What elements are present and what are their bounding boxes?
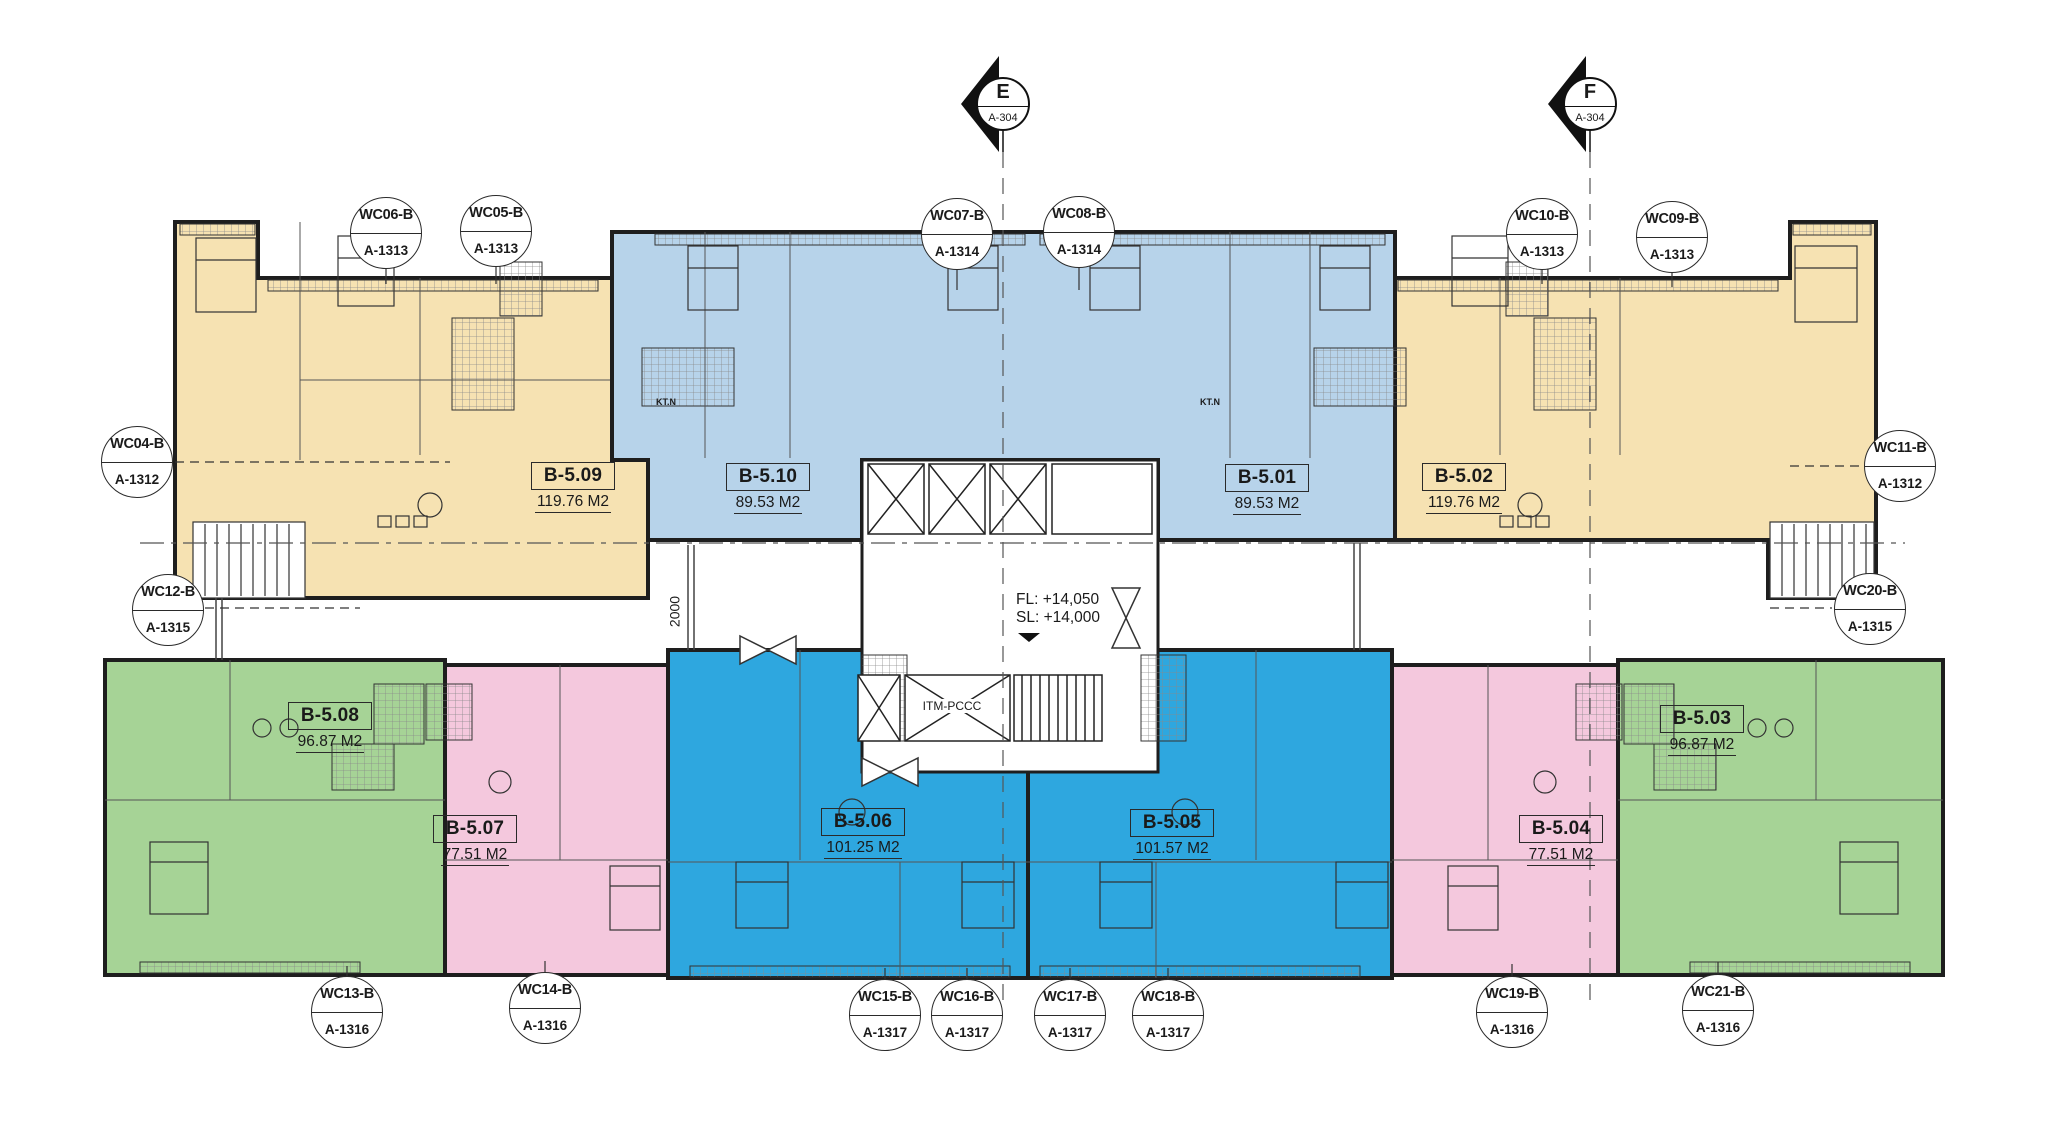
unit-label-b-5-07: B-5.07 77.51 M2	[405, 815, 545, 866]
callout-sheet: A-1316	[312, 1013, 382, 1048]
callout-code: WC13-B	[312, 977, 382, 1013]
callout-sheet: A-1313	[351, 234, 421, 269]
grid-marker-letter: E	[978, 79, 1028, 107]
callout-sheet: A-1315	[133, 611, 203, 646]
callout-code: WC06-B	[351, 198, 421, 234]
unit-code: B-5.06	[821, 808, 905, 836]
callout-code: WC19-B	[1477, 977, 1547, 1013]
callout-wc12-b: WC12-B A-1315	[132, 574, 204, 646]
callout-code: WC11-B	[1865, 431, 1935, 467]
callout-sheet: A-1317	[1133, 1016, 1203, 1051]
callout-wc20-b: WC20-B A-1315	[1834, 573, 1906, 645]
unit-code: B-5.07	[433, 815, 517, 843]
callout-wc14-b: WC14-B A-1316	[509, 972, 581, 1044]
unit-area: 77.51 M2	[1527, 846, 1596, 866]
callout-wc19-b: WC19-B A-1316	[1476, 976, 1548, 1048]
callout-code: WC10-B	[1507, 199, 1577, 235]
callout-wc07-b: WC07-B A-1314	[921, 198, 993, 270]
callout-wc16-b: WC16-B A-1317	[931, 979, 1003, 1051]
callout-wc10-b: WC10-B A-1313	[1506, 198, 1578, 270]
callout-code: WC14-B	[510, 973, 580, 1009]
callout-code: WC18-B	[1133, 980, 1203, 1016]
callout-sheet: A-1314	[922, 235, 992, 270]
unit-label-b-5-01: B-5.01 89.53 M2	[1197, 464, 1337, 515]
unit-label-b-5-10: B-5.10 89.53 M2	[698, 463, 838, 514]
itm-pccc-label: ITM-PCCC	[897, 699, 1007, 713]
floor-level-note: FL: +14,050 SL: +14,000	[1016, 591, 1100, 627]
unit-code: B-5.02	[1422, 463, 1506, 491]
unit-label-b-5-04: B-5.04 77.51 M2	[1491, 815, 1631, 866]
grid-marker-sheet: A-304	[978, 107, 1028, 129]
unit-code: B-5.05	[1130, 809, 1214, 837]
callout-code: WC16-B	[932, 980, 1002, 1016]
callout-wc18-b: WC18-B A-1317	[1132, 979, 1204, 1051]
unit-code: B-5.03	[1660, 705, 1744, 733]
tech-room-label-right: KT.N	[1192, 397, 1228, 407]
unit-code: B-5.04	[1519, 815, 1603, 843]
unit-area: 119.76 M2	[1426, 494, 1502, 514]
unit-area: 101.57 M2	[1133, 840, 1210, 860]
callout-sheet: A-1313	[461, 232, 531, 267]
callout-sheet: A-1312	[102, 463, 172, 498]
floor-level-sl: SL: +14,000	[1016, 609, 1100, 627]
callout-wc21-b: WC21-B A-1316	[1682, 974, 1754, 1046]
unit-code: B-5.01	[1225, 464, 1309, 492]
callout-wc04-b: WC04-B A-1312	[101, 426, 173, 498]
tech-room-label-left: KT.N	[648, 397, 684, 407]
callout-sheet: A-1312	[1865, 467, 1935, 502]
unit-area: 96.87 M2	[296, 733, 365, 753]
callout-code: WC21-B	[1683, 975, 1753, 1011]
callout-code: WC12-B	[133, 575, 203, 611]
callout-code: WC17-B	[1035, 980, 1105, 1016]
floor-plan-drawing	[0, 0, 2048, 1130]
callout-sheet: A-1316	[1683, 1011, 1753, 1046]
callout-sheet: A-1313	[1507, 235, 1577, 270]
grid-marker-f: F A-304	[1563, 77, 1617, 131]
unit-area: 89.53 M2	[734, 494, 803, 514]
floor-level-fl: FL: +14,050	[1016, 591, 1100, 609]
unit-code: B-5.08	[288, 702, 372, 730]
unit-code: B-5.09	[531, 462, 615, 490]
callout-sheet: A-1313	[1637, 238, 1707, 273]
grid-marker-e: E A-304	[976, 77, 1030, 131]
callout-wc09-b: WC09-B A-1313	[1636, 201, 1708, 273]
callout-sheet: A-1317	[1035, 1016, 1105, 1051]
dimension-2000: 2000	[667, 586, 682, 638]
grid-marker-sheet: A-304	[1565, 107, 1615, 129]
unit-area: 96.87 M2	[1668, 736, 1737, 756]
callout-code: WC04-B	[102, 427, 172, 463]
unit-label-b-5-02: B-5.02 119.76 M2	[1394, 463, 1534, 514]
unit-area: 77.51 M2	[441, 846, 510, 866]
callout-sheet: A-1316	[510, 1009, 580, 1044]
callout-sheet: A-1314	[1044, 233, 1114, 268]
callout-wc15-b: WC15-B A-1317	[849, 979, 921, 1051]
callout-wc06-b: WC06-B A-1313	[350, 197, 422, 269]
callout-code: WC05-B	[461, 196, 531, 232]
callout-wc11-b: WC11-B A-1312	[1864, 430, 1936, 502]
unit-label-b-5-08: B-5.08 96.87 M2	[260, 702, 400, 753]
unit-label-b-5-05: B-5.05 101.57 M2	[1102, 809, 1242, 860]
floor-plan: E A-304 F A-304 WC06-B A-1313 WC05-B A-1…	[0, 0, 2048, 1130]
callout-wc05-b: WC05-B A-1313	[460, 195, 532, 267]
callout-code: WC07-B	[922, 199, 992, 235]
callout-code: WC09-B	[1637, 202, 1707, 238]
callout-code: WC15-B	[850, 980, 920, 1016]
callout-sheet: A-1317	[850, 1016, 920, 1051]
grid-marker-letter: F	[1565, 79, 1615, 107]
callout-sheet: A-1315	[1835, 610, 1905, 645]
grid-marker-stems	[1003, 131, 1590, 152]
unit-label-b-5-09: B-5.09 119.76 M2	[503, 462, 643, 513]
callout-wc13-b: WC13-B A-1316	[311, 976, 383, 1048]
callout-sheet: A-1317	[932, 1016, 1002, 1051]
unit-label-b-5-03: B-5.03 96.87 M2	[1632, 705, 1772, 756]
callout-wc08-b: WC08-B A-1314	[1043, 196, 1115, 268]
callout-code: WC08-B	[1044, 197, 1114, 233]
unit-area: 119.76 M2	[535, 493, 611, 513]
callout-sheet: A-1316	[1477, 1013, 1547, 1048]
callout-code: WC20-B	[1835, 574, 1905, 610]
callout-wc17-b: WC17-B A-1317	[1034, 979, 1106, 1051]
unit-area: 101.25 M2	[824, 839, 901, 859]
unit-code: B-5.10	[726, 463, 810, 491]
unit-label-b-5-06: B-5.06 101.25 M2	[793, 808, 933, 859]
unit-area: 89.53 M2	[1233, 495, 1302, 515]
